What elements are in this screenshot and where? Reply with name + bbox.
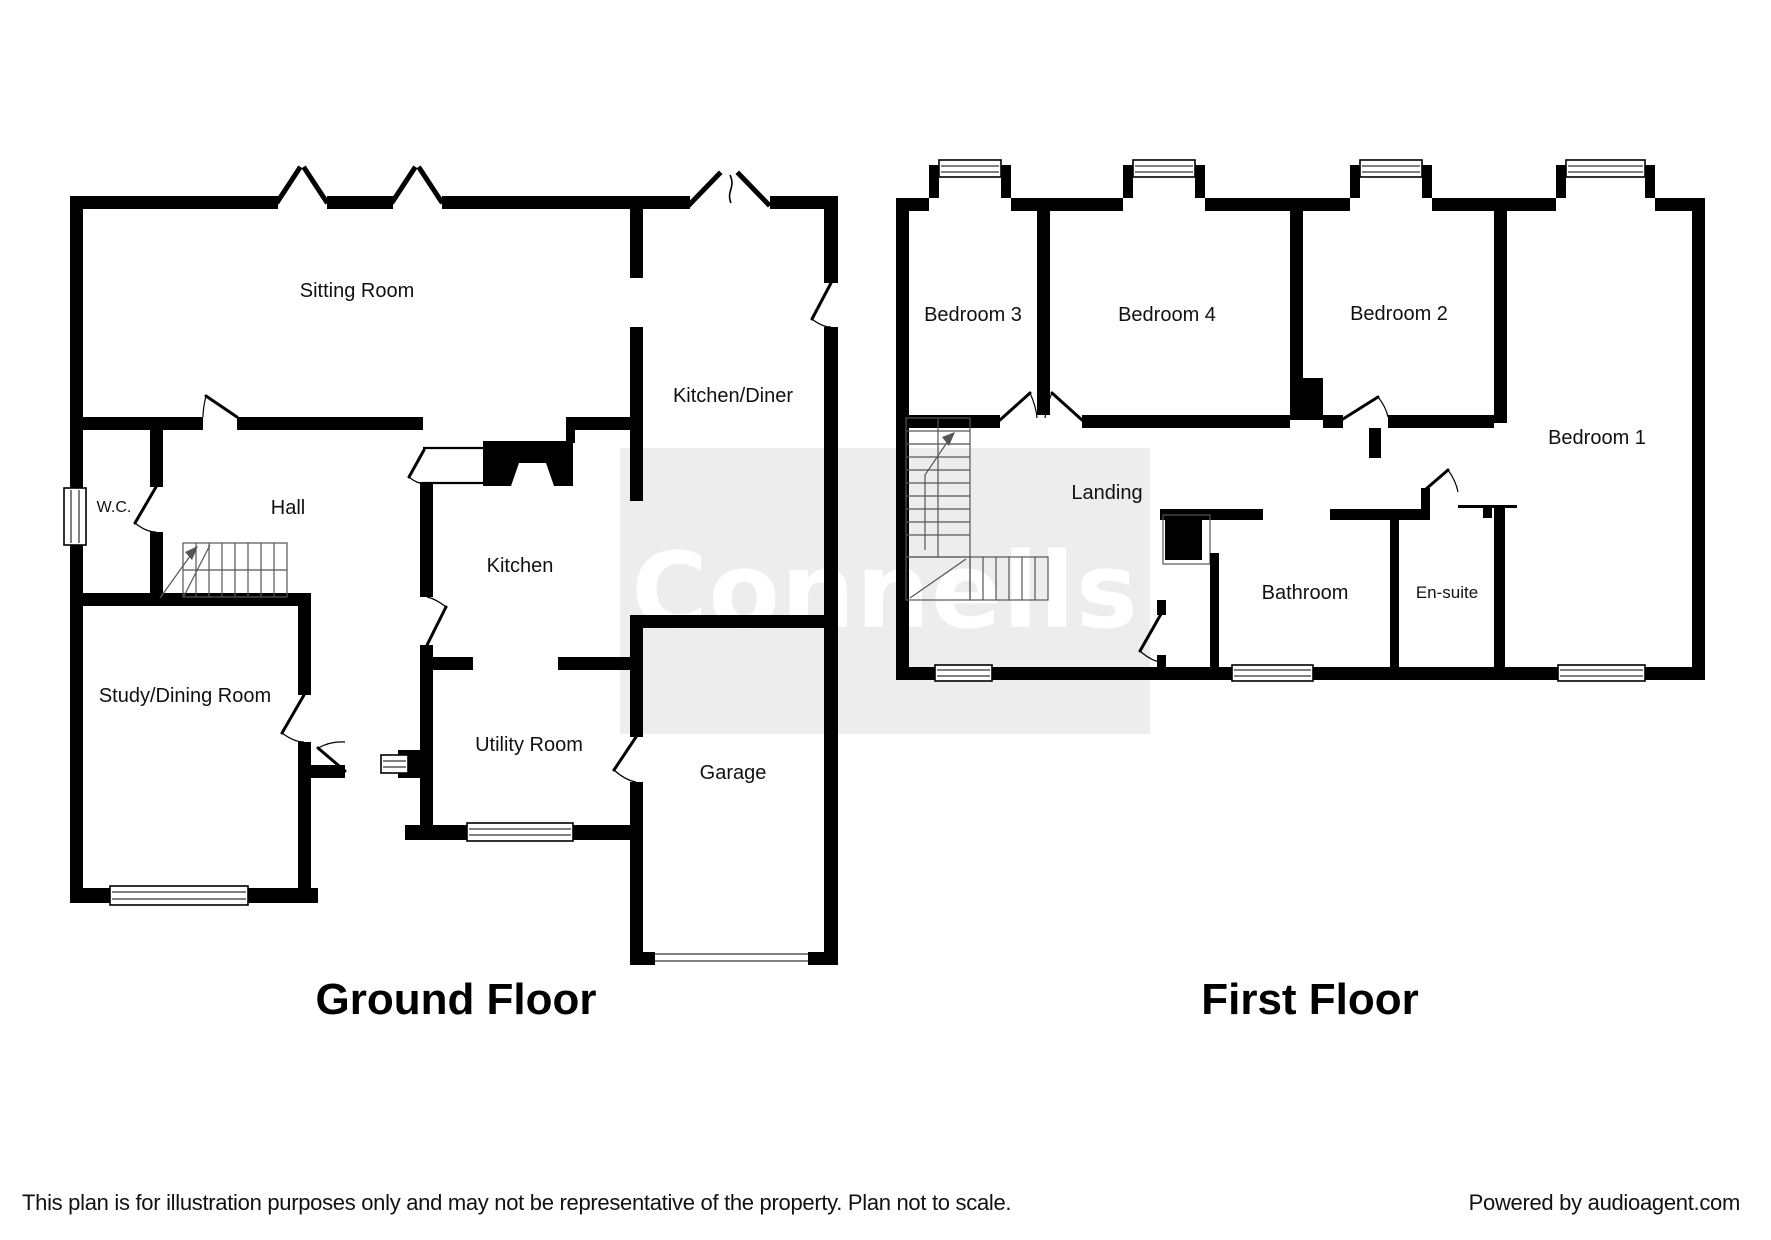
room-label-bedroom-1: Bedroom 1 xyxy=(1548,427,1646,449)
first-floor-doors xyxy=(1000,393,1458,662)
first-floor-title: First Floor xyxy=(1201,975,1419,1024)
room-label-utility-room: Utility Room xyxy=(475,734,583,756)
ground-floor-doors xyxy=(135,169,831,961)
ground-floor-title: Ground Floor xyxy=(315,975,596,1024)
first-floor-stairs xyxy=(906,418,1048,600)
ground-floor-labels: Sitting Room Kitchen/Diner W.C. Hall Kit… xyxy=(97,280,794,784)
room-label-bedroom-2: Bedroom 2 xyxy=(1350,303,1448,325)
room-label-bedroom-3: Bedroom 3 xyxy=(924,304,1022,326)
room-label-kitchen-diner: Kitchen/Diner xyxy=(673,385,793,407)
ground-floor-stairs xyxy=(160,543,287,598)
room-label-bedroom-4: Bedroom 4 xyxy=(1118,304,1216,326)
room-label-bathroom: Bathroom xyxy=(1262,582,1349,604)
footer-disclaimer: This plan is for illustration purposes o… xyxy=(22,1190,1011,1215)
room-label-garage: Garage xyxy=(700,762,767,784)
room-label-en-suite: En-suite xyxy=(1416,583,1478,602)
room-label-hall: Hall xyxy=(271,497,305,519)
room-label-study-dining-room: Study/Dining Room xyxy=(99,685,271,707)
ground-floor-walls xyxy=(70,196,838,965)
first-floor-labels: Bedroom 3 Bedroom 4 Bedroom 2 Bedroom 1 … xyxy=(924,303,1646,604)
room-label-landing: Landing xyxy=(1071,482,1142,504)
room-label-wc: W.C. xyxy=(97,499,132,516)
footer-credit: Powered by audioagent.com xyxy=(1469,1190,1740,1215)
floorplan-page: Connells xyxy=(0,0,1771,1240)
floorplan-drawing: Sitting Room Kitchen/Diner W.C. Hall Kit… xyxy=(0,0,1771,1240)
room-label-kitchen: Kitchen xyxy=(487,555,554,577)
room-label-sitting-room: Sitting Room xyxy=(300,280,415,302)
